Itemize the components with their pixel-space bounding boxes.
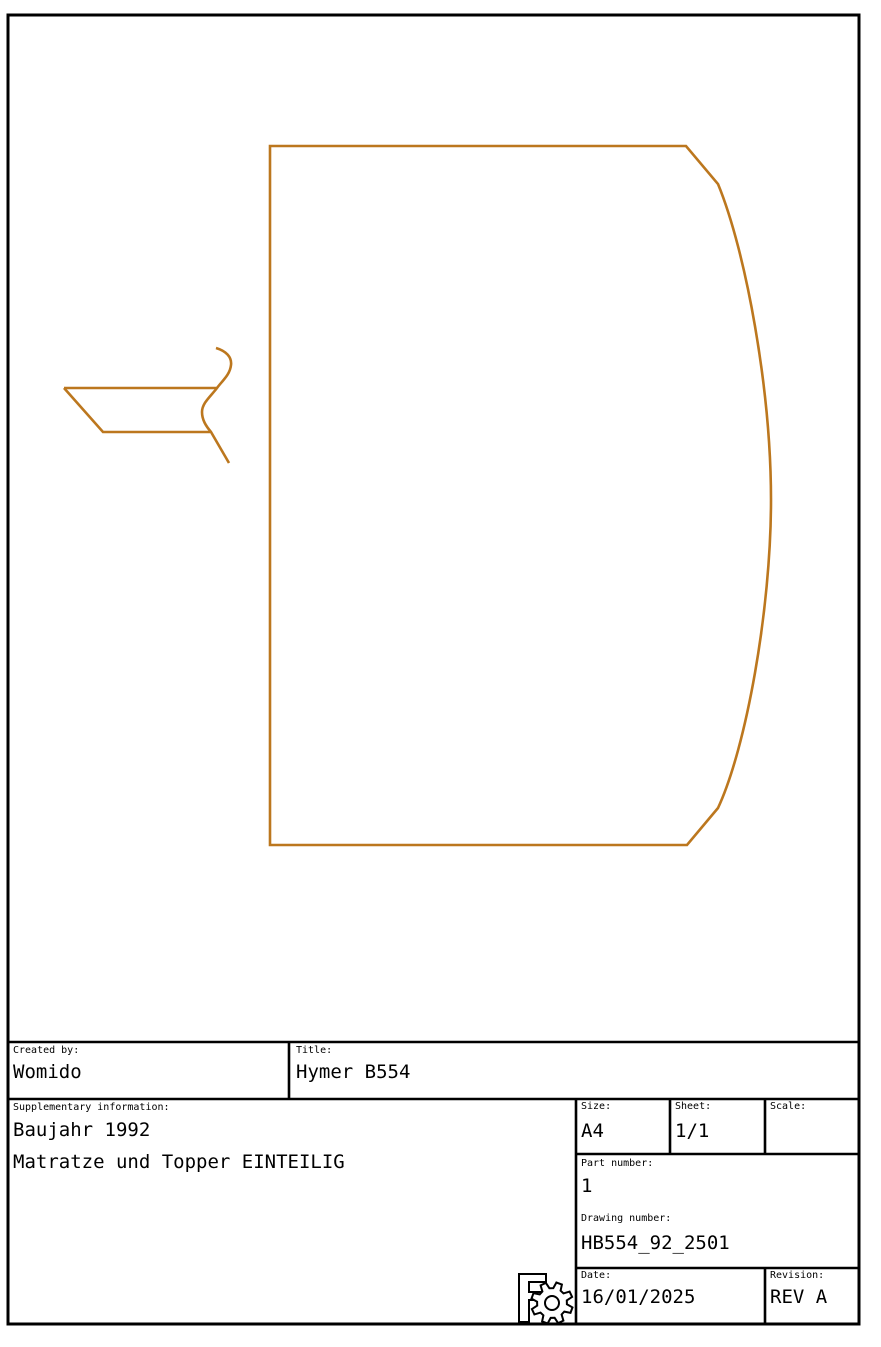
created-by-label: Created by:: [13, 1045, 79, 1056]
supplementary-line2: Matratze und Topper EINTEILIG: [13, 1152, 345, 1173]
date-value: 16/01/2025: [581, 1287, 695, 1308]
revision-label: Revision:: [770, 1270, 824, 1281]
detail-s-curve: [202, 348, 231, 463]
size-label: Size:: [581, 1101, 611, 1112]
title-value: Hymer B554: [296, 1062, 410, 1083]
supplementary-label: Supplementary information:: [13, 1102, 170, 1113]
sheet-canvas: [0, 0, 881, 1347]
mattress-outline: [270, 146, 771, 845]
drawing-sheet: Created by: Womido Title: Hymer B554 Sup…: [0, 0, 881, 1347]
part-number-value: 1: [581, 1176, 592, 1197]
revision-value: REV A: [770, 1287, 827, 1308]
drawing-number-label: Drawing number:: [581, 1213, 671, 1224]
size-value: A4: [581, 1121, 604, 1142]
detail-left-bottom-edge: [64, 388, 210, 432]
drawing-number-value: HB554_92_2501: [581, 1233, 730, 1254]
sheet-label: Sheet:: [675, 1101, 711, 1112]
part-number-label: Part number:: [581, 1158, 653, 1169]
supplementary-line1: Baujahr 1992: [13, 1120, 150, 1141]
freecad-techdraw-logo-icon: [519, 1274, 573, 1324]
title-label: Title:: [296, 1045, 332, 1056]
scale-label: Scale:: [770, 1101, 806, 1112]
date-label: Date:: [581, 1270, 611, 1281]
gear-icon: [532, 1283, 573, 1324]
sheet-value: 1/1: [675, 1121, 709, 1142]
created-by-value: Womido: [13, 1062, 82, 1083]
title-block-grid: [8, 1042, 859, 1324]
